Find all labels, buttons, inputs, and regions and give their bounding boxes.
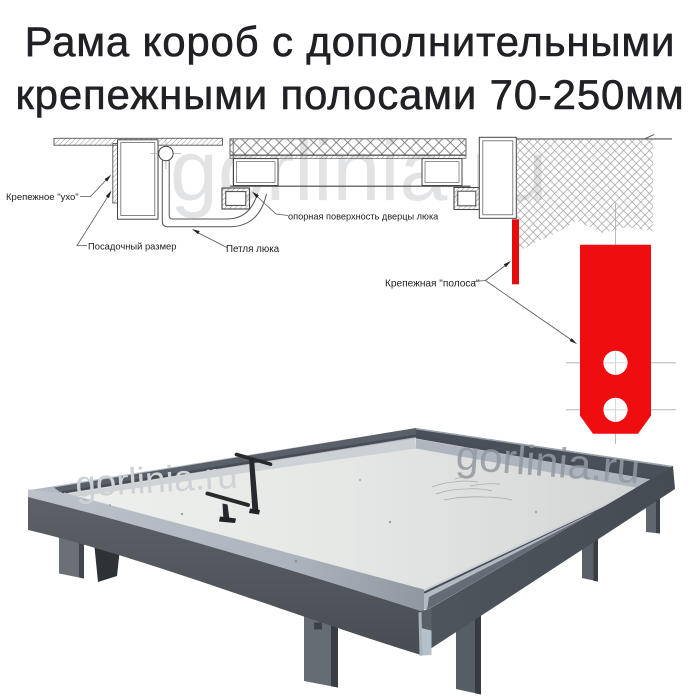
svg-text:крепежными полосами 70-250мм: крепежными полосами 70-250мм xyxy=(15,71,684,118)
svg-text:Петля люка: Петля люка xyxy=(226,244,280,255)
svg-text:опорная поверхность дверцы люк: опорная поверхность дверцы люка xyxy=(288,212,439,222)
svg-text:Крепежное "ухо": Крепежное "ухо" xyxy=(6,192,79,203)
svg-text:Крепежная "полоса": Крепежная "полоса" xyxy=(385,279,480,290)
svg-text:Посадочный размер: Посадочный размер xyxy=(88,241,176,252)
svg-text:Рама короб с дополнительными: Рама короб с дополнительными xyxy=(25,18,676,65)
